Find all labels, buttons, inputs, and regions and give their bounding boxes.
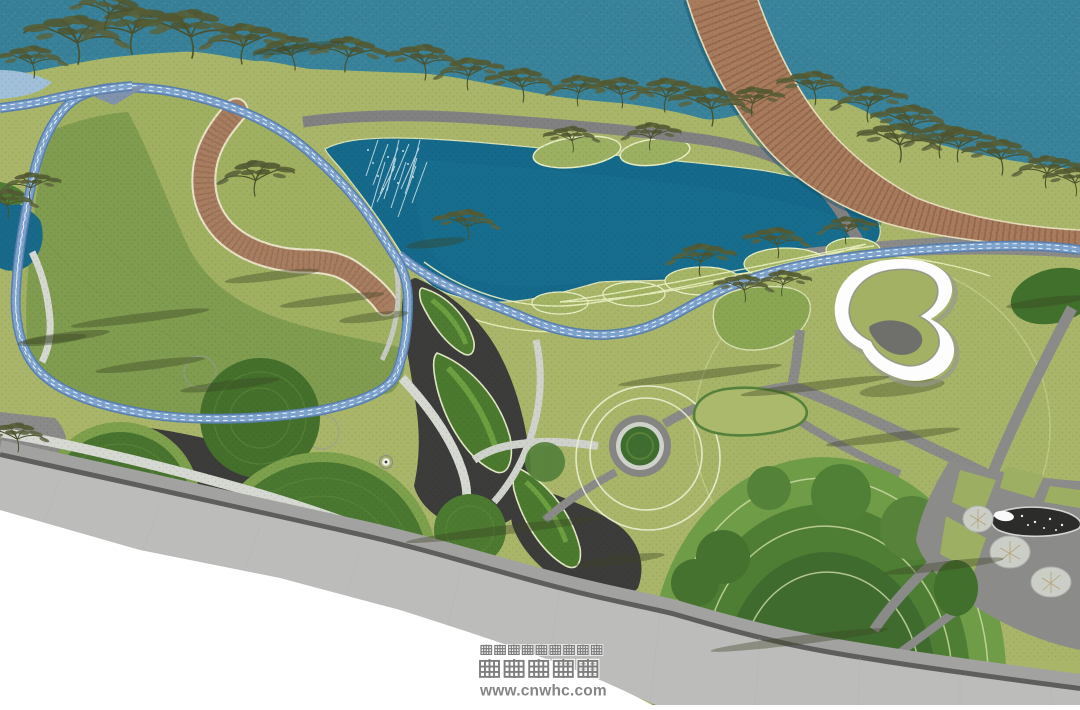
svg-text:www.cnwhc.com: www.cnwhc.com [479, 683, 607, 700]
